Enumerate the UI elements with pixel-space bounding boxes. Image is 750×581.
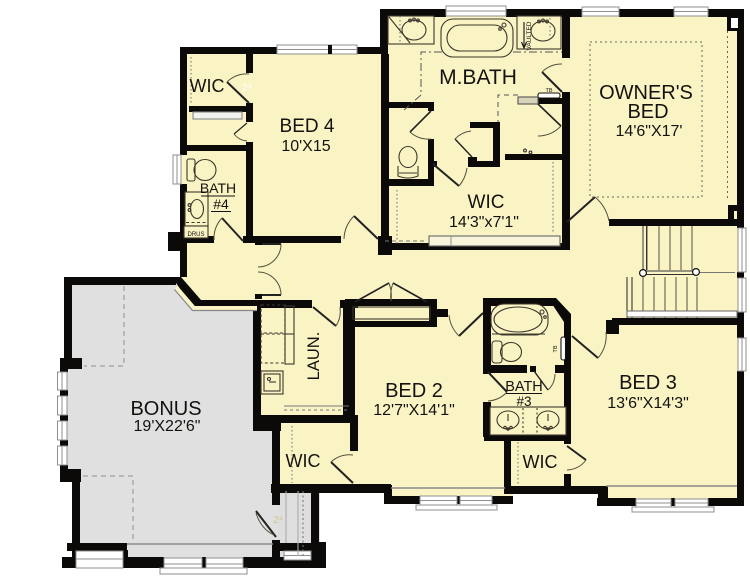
svg-text:M.BATH: M.BATH: [439, 66, 517, 89]
svg-text:13'6"X14'3": 13'6"X14'3": [607, 395, 689, 412]
svg-text:14'6"X17': 14'6"X17': [616, 123, 683, 140]
svg-text:BATH: BATH: [505, 379, 543, 395]
svg-text:19'X22'6": 19'X22'6": [134, 418, 201, 435]
svg-text:TB: TB: [553, 345, 559, 352]
svg-text:WIC: WIC: [468, 192, 505, 213]
svg-text:2⁴: 2⁴: [273, 515, 283, 526]
svg-text:BATH: BATH: [200, 180, 236, 196]
svg-text:12'7"X14'1": 12'7"X14'1": [373, 402, 455, 419]
svg-text:BONUS: BONUS: [130, 398, 201, 420]
svg-text:VAULTED: VAULTED: [526, 21, 533, 50]
svg-text:LAUN.: LAUN.: [305, 332, 323, 381]
svg-text:10'X15: 10'X15: [281, 138, 330, 155]
svg-text:DRUS: DRUS: [187, 232, 204, 238]
svg-text:BED 2: BED 2: [385, 380, 443, 402]
svg-text:#4: #4: [213, 196, 229, 212]
svg-text:TB: TB: [545, 88, 552, 94]
svg-text:14'3"x7'1": 14'3"x7'1": [449, 214, 519, 231]
svg-text:2⁴: 2⁴: [242, 83, 252, 94]
svg-text:WIC: WIC: [286, 451, 321, 471]
svg-text:WIC: WIC: [523, 452, 558, 472]
svg-text:BED 4: BED 4: [280, 116, 335, 137]
svg-text:#3: #3: [516, 394, 531, 409]
svg-text:WIC: WIC: [190, 76, 225, 96]
svg-text:BED 3: BED 3: [619, 372, 677, 394]
svg-text:BED: BED: [627, 101, 668, 123]
